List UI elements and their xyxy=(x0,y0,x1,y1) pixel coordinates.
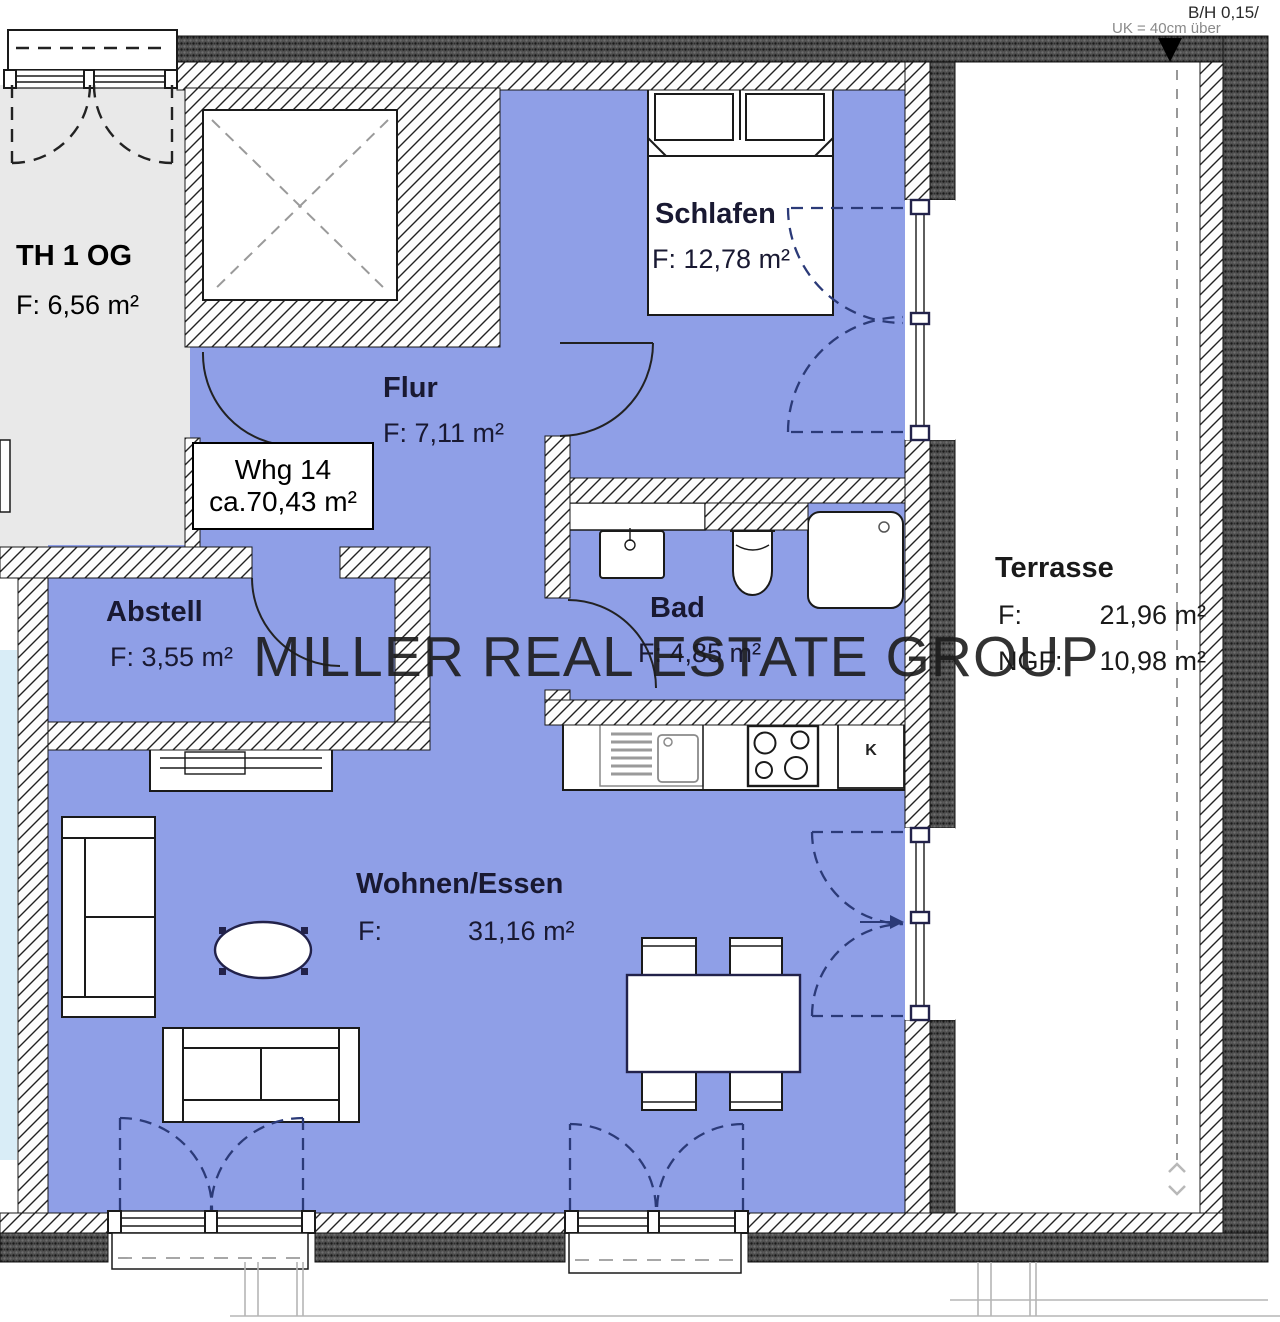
sofa-horizontal xyxy=(163,1028,359,1122)
unit-number: Whg 14 xyxy=(235,454,332,486)
room-area-abstell: F: 3,55 m² xyxy=(110,642,233,673)
room-label-flur: Flur xyxy=(383,372,438,405)
vanity xyxy=(568,503,705,530)
toilet-bowl xyxy=(733,531,772,595)
room-area-wohnen-value: 31,16 m² xyxy=(468,916,575,947)
floor-plan: UK = 40cm über xyxy=(0,0,1280,1322)
watermark: MILLER REAL ESTATE GROUP xyxy=(253,624,1099,690)
room-area-schlafen: F: 12,78 m² xyxy=(652,244,790,275)
schlafen-terrace-door xyxy=(905,200,955,440)
room-label-th: TH 1 OG xyxy=(16,240,132,273)
bottom-window-1 xyxy=(108,1211,315,1269)
unit-label-box: Whg 14 ca.70,43 m² xyxy=(192,442,374,530)
elevator-shaft xyxy=(203,110,397,300)
bath-sink xyxy=(600,531,664,578)
chair xyxy=(642,1072,696,1110)
room-area-flur: F: 7,11 m² xyxy=(383,418,504,449)
chair xyxy=(730,938,782,976)
sofa-vertical xyxy=(62,817,155,1017)
room-label-wohnen: Wohnen/Essen xyxy=(356,868,563,901)
fridge-label: K xyxy=(838,742,904,760)
room-label-bad: Bad xyxy=(650,592,705,625)
pillow xyxy=(746,94,824,140)
annotation-bh: B/H 0,15/ xyxy=(1188,3,1259,23)
chair xyxy=(642,938,696,976)
coffee-table xyxy=(215,922,311,978)
bottom-window-2 xyxy=(565,1211,748,1273)
chair xyxy=(730,1072,782,1110)
balcony-below-lines xyxy=(230,1262,1280,1316)
unit-area: ca.70,43 m² xyxy=(209,486,357,518)
room-area-wohnen-label: F: xyxy=(358,916,382,947)
room-area-th: F: 6,56 m² xyxy=(16,290,139,321)
wohnen-terrace-door xyxy=(905,828,955,1020)
room-label-abstell: Abstell xyxy=(106,596,203,629)
pillow xyxy=(655,94,733,140)
room-label-terrasse: Terrasse xyxy=(995,552,1114,585)
room-label-schlafen: Schlafen xyxy=(655,198,776,231)
